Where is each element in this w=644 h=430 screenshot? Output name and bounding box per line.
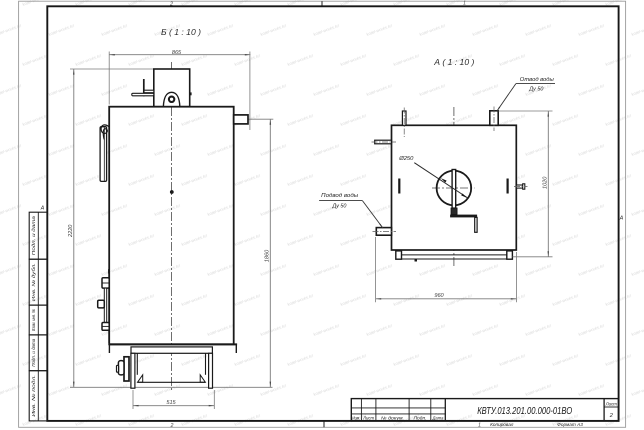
svg-text:kotel-works.kz: kotel-works.kz — [128, 233, 156, 247]
svg-text:kotel-works.kz: kotel-works.kz — [0, 383, 23, 397]
svg-text:kotel-works.kz: kotel-works.kz — [101, 23, 129, 37]
svg-text:kotel-works.kz: kotel-works.kz — [75, 173, 103, 187]
svg-text:kotel-works.kz: kotel-works.kz — [313, 323, 341, 337]
svg-text:kotel-works.kz: kotel-works.kz — [234, 413, 262, 427]
svg-text:kotel-works.kz: kotel-works.kz — [631, 143, 644, 157]
svg-text:kotel-works.kz: kotel-works.kz — [75, 113, 103, 127]
svg-text:kotel-works.kz: kotel-works.kz — [75, 53, 103, 67]
svg-text:2: 2 — [609, 413, 614, 419]
svg-text:kotel-works.kz: kotel-works.kz — [313, 143, 341, 157]
svg-text:kotel-works.kz: kotel-works.kz — [154, 203, 182, 217]
svg-text:Лист: Лист — [362, 415, 374, 420]
svg-text:kotel-works.kz: kotel-works.kz — [154, 323, 182, 337]
svg-text:kotel-works.kz: kotel-works.kz — [472, 263, 500, 277]
svg-text:Подп. и дата: Подп. и дата — [31, 216, 36, 256]
svg-text:kotel-works.kz: kotel-works.kz — [75, 413, 103, 427]
svg-text:kotel-works.kz: kotel-works.kz — [48, 323, 76, 337]
svg-text:А ( 1 : 10 ): А ( 1 : 10 ) — [433, 57, 474, 67]
svg-text:kotel-works.kz: kotel-works.kz — [48, 143, 76, 157]
svg-text:kotel-works.kz: kotel-works.kz — [552, 113, 580, 127]
svg-text:kotel-works.kz: kotel-works.kz — [260, 323, 288, 337]
svg-text:kotel-works.kz: kotel-works.kz — [181, 293, 209, 307]
svg-text:kotel-works.kz: kotel-works.kz — [419, 323, 447, 337]
svg-text:kotel-works.kz: kotel-works.kz — [207, 203, 235, 217]
svg-text:kotel-works.kz: kotel-works.kz — [207, 83, 235, 97]
svg-text:kotel-works.kz: kotel-works.kz — [207, 23, 235, 37]
svg-text:kotel-works.kz: kotel-works.kz — [22, 53, 50, 67]
svg-text:kotel-works.kz: kotel-works.kz — [366, 323, 394, 337]
svg-text:kotel-works.kz: kotel-works.kz — [578, 383, 606, 397]
svg-text:kotel-works.kz: kotel-works.kz — [75, 353, 103, 367]
svg-text:kotel-works.kz: kotel-works.kz — [340, 293, 368, 307]
svg-text:kotel-works.kz: kotel-works.kz — [287, 113, 315, 127]
svg-text:kotel-works.kz: kotel-works.kz — [313, 23, 341, 37]
svg-text:kotel-works.kz: kotel-works.kz — [234, 293, 262, 307]
svg-text:kotel-works.kz: kotel-works.kz — [631, 23, 644, 37]
svg-text:Ø250: Ø250 — [398, 156, 414, 162]
svg-text:kotel-works.kz: kotel-works.kz — [393, 293, 421, 307]
svg-text:kotel-works.kz: kotel-works.kz — [578, 23, 606, 37]
svg-text:kotel-works.kz: kotel-works.kz — [631, 323, 644, 337]
svg-text:Подп. и дата: Подп. и дата — [31, 338, 36, 366]
svg-text:kotel-works.kz: kotel-works.kz — [181, 413, 209, 427]
svg-text:kotel-works.kz: kotel-works.kz — [578, 83, 606, 97]
svg-text:kotel-works.kz: kotel-works.kz — [260, 23, 288, 37]
svg-text:kotel-works.kz: kotel-works.kz — [128, 173, 156, 187]
svg-text:kotel-works.kz: kotel-works.kz — [48, 83, 76, 97]
svg-text:Инв. № подл.: Инв. № подл. — [31, 375, 36, 417]
svg-text:kotel-works.kz: kotel-works.kz — [525, 323, 553, 337]
svg-text:kotel-works.kz: kotel-works.kz — [128, 293, 156, 307]
svg-text:kotel-works.kz: kotel-works.kz — [552, 53, 580, 67]
svg-text:kotel-works.kz: kotel-works.kz — [578, 143, 606, 157]
svg-text:kotel-works.kz: kotel-works.kz — [366, 23, 394, 37]
svg-text:1020: 1020 — [543, 176, 549, 189]
svg-text:kotel-works.kz: kotel-works.kz — [578, 263, 606, 277]
svg-text:kotel-works.kz: kotel-works.kz — [472, 323, 500, 337]
svg-text:kotel-works.kz: kotel-works.kz — [552, 293, 580, 307]
svg-text:1860: 1860 — [265, 249, 271, 262]
svg-text:kotel-works.kz: kotel-works.kz — [631, 203, 644, 217]
svg-text:kotel-works.kz: kotel-works.kz — [260, 383, 288, 397]
svg-text:kotel-works.kz: kotel-works.kz — [446, 293, 474, 307]
svg-text:kotel-works.kz: kotel-works.kz — [101, 83, 129, 97]
svg-text:kotel-works.kz: kotel-works.kz — [287, 233, 315, 247]
svg-text:kotel-works.kz: kotel-works.kz — [181, 353, 209, 367]
svg-text:kotel-works.kz: kotel-works.kz — [472, 383, 500, 397]
svg-text:kotel-works.kz: kotel-works.kz — [75, 233, 103, 247]
svg-text:kotel-works.kz: kotel-works.kz — [260, 143, 288, 157]
svg-text:Дата: Дата — [432, 415, 444, 420]
svg-text:kotel-works.kz: kotel-works.kz — [48, 203, 76, 217]
svg-text:kotel-works.kz: kotel-works.kz — [419, 83, 447, 97]
svg-text:515: 515 — [166, 400, 176, 406]
svg-text:kotel-works.kz: kotel-works.kz — [287, 353, 315, 367]
svg-text:kotel-works.kz: kotel-works.kz — [207, 143, 235, 157]
svg-text:kotel-works.kz: kotel-works.kz — [287, 53, 315, 67]
svg-text:kotel-works.kz: kotel-works.kz — [419, 383, 447, 397]
svg-text:kotel-works.kz: kotel-works.kz — [578, 203, 606, 217]
svg-text:Ду 50: Ду 50 — [331, 204, 346, 210]
svg-text:Отвод воды: Отвод воды — [520, 77, 554, 83]
svg-text:kotel-works.kz: kotel-works.kz — [260, 203, 288, 217]
svg-text:kotel-works.kz: kotel-works.kz — [128, 113, 156, 127]
svg-text:Формат А3: Формат А3 — [557, 422, 583, 427]
svg-text:kotel-works.kz: kotel-works.kz — [499, 293, 527, 307]
svg-text:kotel-works.kz: kotel-works.kz — [0, 323, 23, 337]
svg-text:kotel-works.kz: kotel-works.kz — [128, 413, 156, 427]
svg-text:kotel-works.kz: kotel-works.kz — [287, 413, 315, 427]
svg-text:kotel-works.kz: kotel-works.kz — [181, 173, 209, 187]
svg-text:kotel-works.kz: kotel-works.kz — [366, 83, 394, 97]
svg-text:КВТУ.013.201.00.000-01ВО: КВТУ.013.201.00.000-01ВО — [477, 405, 572, 417]
svg-text:2220: 2220 — [68, 224, 74, 238]
svg-text:kotel-works.kz: kotel-works.kz — [525, 23, 553, 37]
svg-text:kotel-works.kz: kotel-works.kz — [260, 263, 288, 277]
svg-text:kotel-works.kz: kotel-works.kz — [340, 173, 368, 187]
svg-text:kotel-works.kz: kotel-works.kz — [234, 233, 262, 247]
svg-text:kotel-works.kz: kotel-works.kz — [631, 383, 644, 397]
svg-text:kotel-works.kz: kotel-works.kz — [525, 383, 553, 397]
svg-text:kotel-works.kz: kotel-works.kz — [472, 83, 500, 97]
svg-text:kotel-works.kz: kotel-works.kz — [340, 233, 368, 247]
svg-text:kotel-works.kz: kotel-works.kz — [552, 233, 580, 247]
svg-text:kotel-works.kz: kotel-works.kz — [234, 353, 262, 367]
svg-text:Инв. № дубл.: Инв. № дубл. — [31, 263, 36, 301]
svg-text:kotel-works.kz: kotel-works.kz — [340, 353, 368, 367]
svg-text:kotel-works.kz: kotel-works.kz — [0, 83, 23, 97]
svg-text:kotel-works.kz: kotel-works.kz — [419, 263, 447, 277]
svg-text:kotel-works.kz: kotel-works.kz — [181, 113, 209, 127]
svg-text:№ докум.: № докум. — [381, 415, 404, 420]
svg-text:kotel-works.kz: kotel-works.kz — [181, 233, 209, 247]
svg-text:Копировал: Копировал — [490, 422, 514, 427]
svg-text:kotel-works.kz: kotel-works.kz — [48, 23, 76, 37]
svg-text:2: 2 — [170, 423, 174, 429]
svg-text:kotel-works.kz: kotel-works.kz — [393, 353, 421, 367]
svg-text:kotel-works.kz: kotel-works.kz — [101, 203, 129, 217]
svg-text:Подвод воды: Подвод воды — [321, 193, 358, 199]
svg-text:kotel-works.kz: kotel-works.kz — [22, 113, 50, 127]
svg-text:865: 865 — [172, 50, 182, 56]
svg-text:kotel-works.kz: kotel-works.kz — [366, 263, 394, 277]
svg-text:kotel-works.kz: kotel-works.kz — [154, 143, 182, 157]
svg-text:kotel-works.kz: kotel-works.kz — [234, 173, 262, 187]
svg-text:kotel-works.kz: kotel-works.kz — [0, 263, 23, 277]
svg-text:kotel-works.kz: kotel-works.kz — [631, 263, 644, 277]
svg-text:kotel-works.kz: kotel-works.kz — [48, 383, 76, 397]
svg-text:kotel-works.kz: kotel-works.kz — [472, 23, 500, 37]
svg-text:kotel-works.kz: kotel-works.kz — [313, 263, 341, 277]
svg-text:А: А — [40, 206, 45, 212]
svg-text:kotel-works.kz: kotel-works.kz — [552, 173, 580, 187]
svg-text:1: 1 — [478, 423, 481, 429]
svg-text:kotel-works.kz: kotel-works.kz — [154, 263, 182, 277]
svg-text:kotel-works.kz: kotel-works.kz — [287, 293, 315, 307]
svg-text:Подп.: Подп. — [414, 415, 427, 420]
svg-text:kotel-works.kz: kotel-works.kz — [393, 53, 421, 67]
svg-text:kotel-works.kz: kotel-works.kz — [499, 53, 527, 67]
svg-text:kotel-works.kz: kotel-works.kz — [340, 53, 368, 67]
svg-text:960: 960 — [434, 293, 444, 299]
svg-text:kotel-works.kz: kotel-works.kz — [419, 23, 447, 37]
svg-text:kotel-works.kz: kotel-works.kz — [313, 83, 341, 97]
svg-text:Изм.: Изм. — [352, 415, 360, 420]
svg-text:kotel-works.kz: kotel-works.kz — [48, 263, 76, 277]
svg-text:kotel-works.kz: kotel-works.kz — [101, 263, 129, 277]
svg-text:kotel-works.kz: kotel-works.kz — [366, 143, 394, 157]
svg-text:Лист: Лист — [605, 401, 618, 406]
svg-text:kotel-works.kz: kotel-works.kz — [154, 383, 182, 397]
svg-text:kotel-works.kz: kotel-works.kz — [499, 353, 527, 367]
svg-text:kotel-works.kz: kotel-works.kz — [22, 173, 50, 187]
svg-text:kotel-works.kz: kotel-works.kz — [101, 383, 129, 397]
svg-text:kotel-works.kz: kotel-works.kz — [313, 383, 341, 397]
svg-text:kotel-works.kz: kotel-works.kz — [446, 353, 474, 367]
svg-text:Ду 50: Ду 50 — [528, 87, 543, 93]
svg-text:kotel-works.kz: kotel-works.kz — [0, 203, 23, 217]
svg-text:kotel-works.kz: kotel-works.kz — [366, 383, 394, 397]
svg-text:kotel-works.kz: kotel-works.kz — [552, 353, 580, 367]
svg-text:kotel-works.kz: kotel-works.kz — [287, 173, 315, 187]
svg-text:kotel-works.kz: kotel-works.kz — [207, 263, 235, 277]
svg-text:kotel-works.kz: kotel-works.kz — [446, 413, 474, 427]
svg-text:kotel-works.kz: kotel-works.kz — [340, 113, 368, 127]
svg-text:Б ( 1 : 10 ): Б ( 1 : 10 ) — [161, 27, 201, 37]
svg-text:kotel-works.kz: kotel-works.kz — [260, 83, 288, 97]
svg-text:kotel-works.kz: kotel-works.kz — [366, 203, 394, 217]
svg-text:kotel-works.kz: kotel-works.kz — [578, 323, 606, 337]
svg-text:Взам. инв. №: Взам. инв. № — [31, 309, 36, 331]
svg-text:kotel-works.kz: kotel-works.kz — [207, 323, 235, 337]
svg-text:kotel-works.kz: kotel-works.kz — [0, 23, 23, 37]
svg-text:kotel-works.kz: kotel-works.kz — [631, 83, 644, 97]
svg-text:kotel-works.kz: kotel-works.kz — [0, 143, 23, 157]
svg-text:kotel-works.kz: kotel-works.kz — [525, 263, 553, 277]
